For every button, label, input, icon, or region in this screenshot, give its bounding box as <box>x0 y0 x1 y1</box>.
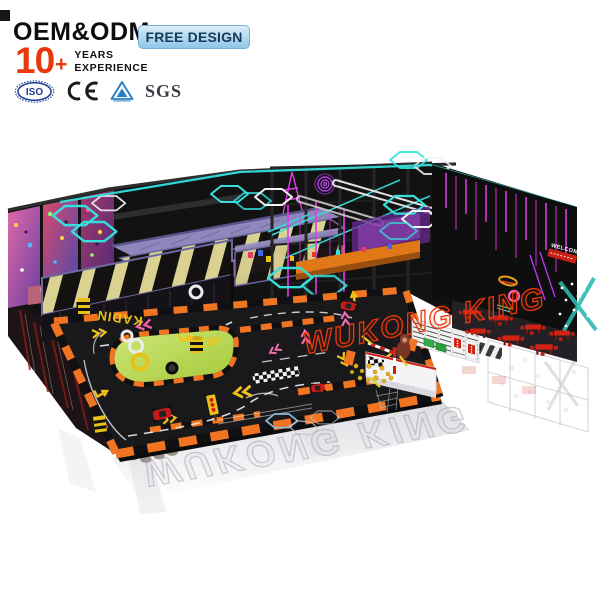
playground-render-scene: WELCOME <box>0 0 600 600</box>
foam-island <box>112 328 236 385</box>
product-image: OEM&ODM FREE DESIGN 10 + YEARS EXPERIENC… <box>0 0 600 600</box>
